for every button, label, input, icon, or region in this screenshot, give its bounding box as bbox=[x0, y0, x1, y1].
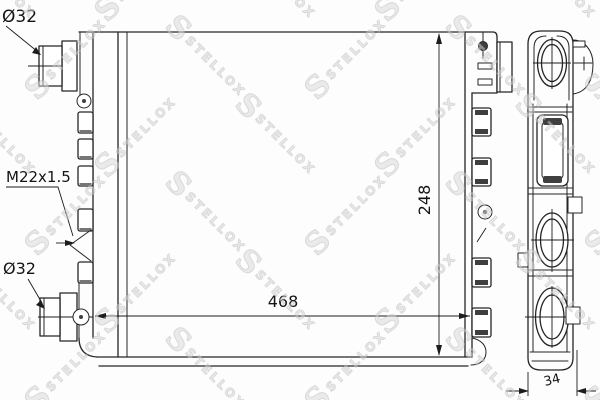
label-outlet-diameter: Ø32 bbox=[3, 259, 36, 278]
mounting-bracket bbox=[497, 42, 512, 92]
drawing-canvas: 468 248 34 Ø32 M22x1.5 Ø32 bbox=[0, 0, 600, 400]
right-tank bbox=[472, 32, 512, 337]
label-drain-thread: M22x1.5 bbox=[6, 168, 71, 186]
side-opening bbox=[537, 115, 568, 186]
side-view bbox=[518, 31, 593, 370]
dim-width-label: 468 bbox=[268, 292, 299, 311]
label-inlet-diameter: Ø32 bbox=[2, 7, 37, 27]
dim-height-label: 248 bbox=[415, 185, 434, 216]
drain-boss bbox=[70, 230, 91, 261]
side-tab bbox=[568, 197, 582, 213]
radiator-technical-drawing: 468 248 34 Ø32 M22x1.5 Ø32 SSTELLOXSSTEL… bbox=[0, 0, 600, 400]
dim-depth-label: 34 bbox=[542, 371, 562, 390]
side-tab bbox=[566, 307, 580, 324]
middle-port bbox=[531, 209, 574, 272]
right-crimp-tabs bbox=[472, 108, 491, 337]
side-tab bbox=[518, 253, 528, 267]
filler-neck bbox=[573, 40, 593, 94]
top-port bbox=[533, 37, 571, 89]
